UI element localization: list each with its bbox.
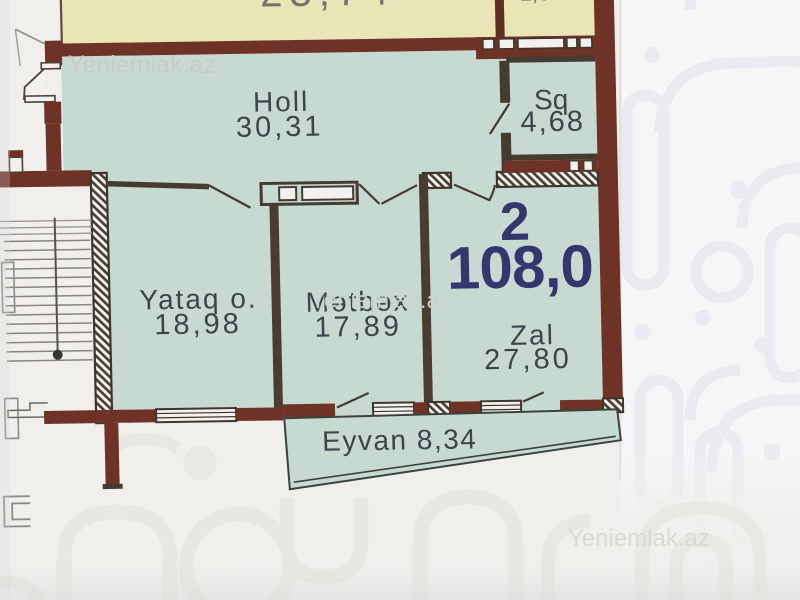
svg-text:30,31: 30,31 bbox=[236, 111, 324, 144]
svg-text:Yeniemlak.az: Yeniemlak.az bbox=[310, 287, 452, 314]
svg-text:Eyvan 8,34: Eyvan 8,34 bbox=[322, 423, 478, 456]
svg-text:Yeniemlak.az: Yeniemlak.az bbox=[568, 525, 710, 552]
svg-text:23,74: 23,74 bbox=[260, 0, 396, 16]
svg-text:4,68: 4,68 bbox=[520, 106, 585, 139]
svg-text:108,0: 108,0 bbox=[446, 233, 594, 302]
svg-text:18,98: 18,98 bbox=[154, 308, 242, 341]
svg-text:Yeniemlak.az: Yeniemlak.az bbox=[68, 51, 216, 79]
svg-text:27,80: 27,80 bbox=[484, 343, 572, 376]
svg-text:1,6: 1,6 bbox=[519, 0, 550, 6]
svg-text:17,89: 17,89 bbox=[314, 310, 402, 343]
